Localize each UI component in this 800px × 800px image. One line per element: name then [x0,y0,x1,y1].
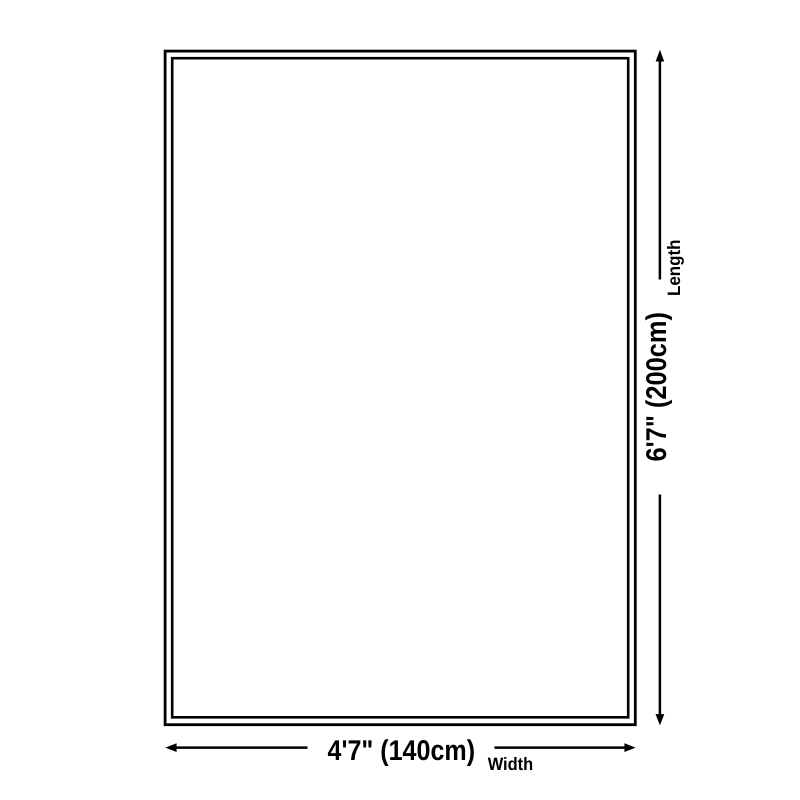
svg-text:Width: Width [488,754,534,774]
svg-text:4'7" (140cm): 4'7" (140cm) [328,735,476,767]
svg-text:6'7" (200cm): 6'7" (200cm) [641,312,673,462]
svg-text:Length: Length [664,240,684,297]
